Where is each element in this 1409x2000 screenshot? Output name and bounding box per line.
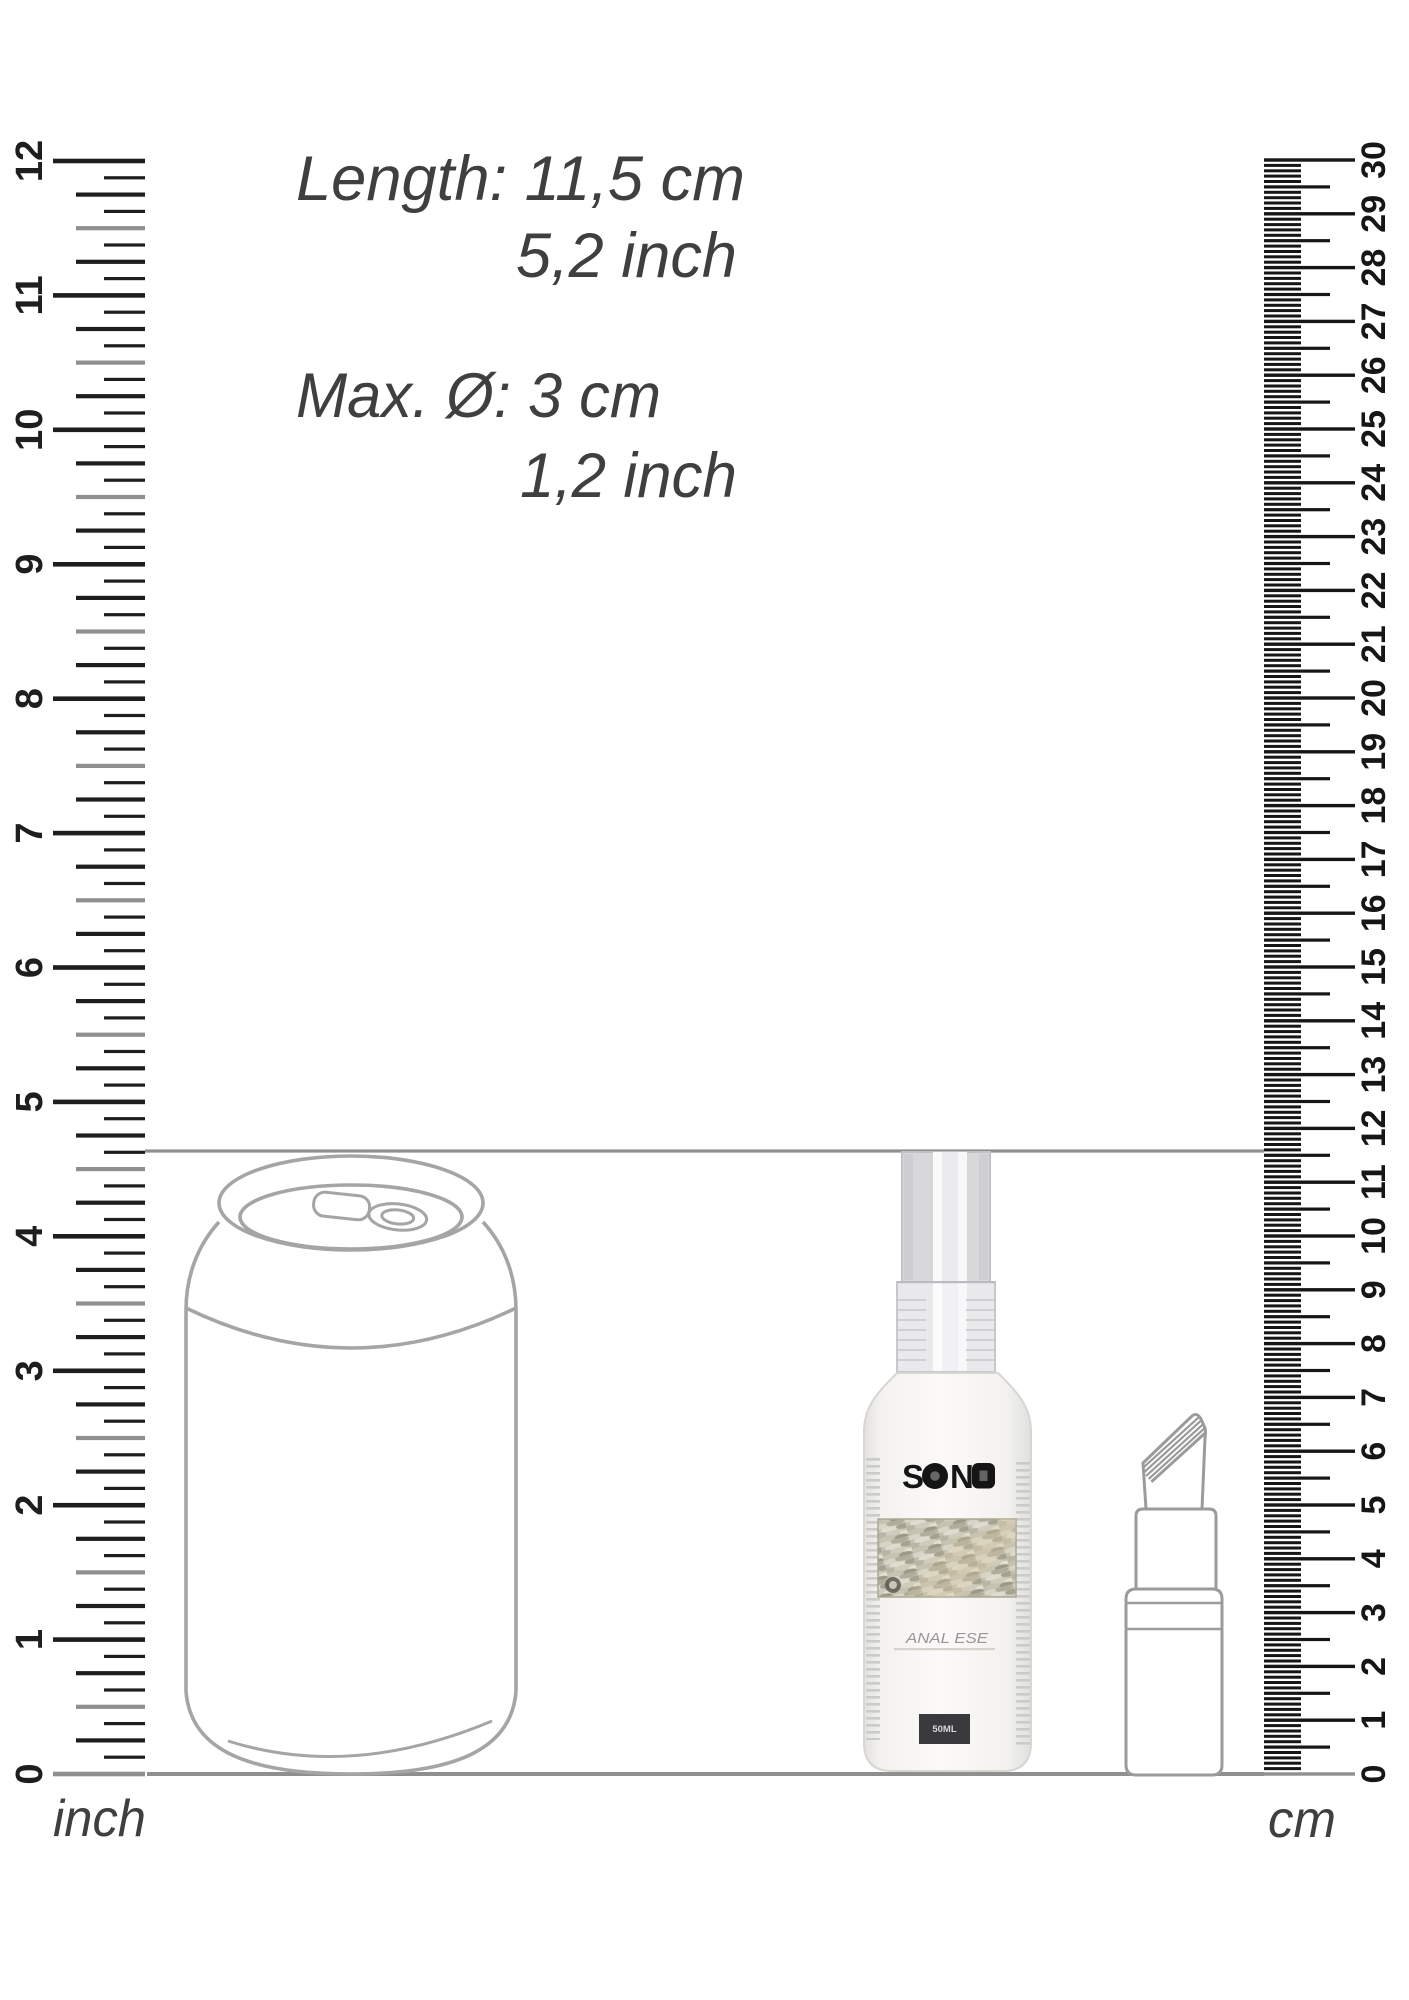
svg-text:26: 26 [1355, 356, 1393, 394]
svg-text:25: 25 [1355, 410, 1393, 448]
svg-text:20: 20 [1355, 679, 1393, 717]
svg-text:2: 2 [1355, 1657, 1393, 1676]
svg-text:8: 8 [9, 688, 51, 709]
svg-text:15: 15 [1355, 948, 1393, 986]
svg-text:5: 5 [9, 1091, 51, 1112]
svg-text:ANAL ESE: ANAL ESE [905, 1630, 989, 1647]
svg-text:cm: cm [1268, 1791, 1336, 1849]
svg-text:12: 12 [9, 140, 51, 182]
svg-text:0: 0 [1355, 1765, 1393, 1784]
svg-text:9: 9 [1355, 1280, 1393, 1299]
svg-text:9: 9 [9, 554, 51, 575]
svg-text:4: 4 [9, 1226, 51, 1247]
svg-text:6: 6 [9, 957, 51, 978]
svg-text:13: 13 [1355, 1056, 1393, 1094]
svg-text:14: 14 [1355, 1002, 1393, 1040]
svg-text:2: 2 [9, 1495, 51, 1516]
svg-text:18: 18 [1355, 787, 1393, 825]
svg-text:3: 3 [1355, 1603, 1393, 1622]
svg-text:12: 12 [1355, 1109, 1393, 1147]
svg-text:S: S [902, 1458, 924, 1495]
svg-text:23: 23 [1355, 518, 1393, 556]
svg-text:1: 1 [9, 1629, 51, 1650]
svg-text:30: 30 [1355, 141, 1393, 179]
svg-text:7: 7 [1355, 1388, 1393, 1407]
svg-text:6: 6 [1355, 1442, 1393, 1461]
svg-text:27: 27 [1355, 302, 1393, 340]
svg-text:3: 3 [9, 1360, 51, 1381]
svg-text:7: 7 [9, 823, 51, 844]
svg-text:5: 5 [1355, 1496, 1393, 1515]
svg-text:1,2 inch: 1,2 inch [520, 441, 737, 511]
svg-text:50ML: 50ML [932, 1724, 956, 1735]
svg-text:28: 28 [1355, 249, 1393, 287]
svg-text:8: 8 [1355, 1334, 1393, 1353]
svg-text:N: N [950, 1458, 974, 1495]
svg-text:5,2 inch: 5,2 inch [516, 221, 737, 291]
svg-text:10: 10 [1355, 1217, 1393, 1255]
svg-text:inch: inch [53, 1790, 146, 1848]
svg-text:11: 11 [1355, 1164, 1393, 1200]
svg-text:4: 4 [1355, 1549, 1393, 1568]
svg-text:16: 16 [1355, 894, 1393, 932]
svg-text:21: 21 [1355, 625, 1393, 663]
svg-text:10: 10 [9, 409, 51, 451]
svg-text:Max. Ø: 3 cm: Max. Ø: 3 cm [296, 361, 661, 431]
svg-text:0: 0 [9, 1763, 51, 1784]
svg-text:22: 22 [1355, 571, 1393, 609]
svg-text:29: 29 [1355, 195, 1393, 233]
svg-text:24: 24 [1355, 464, 1393, 502]
svg-text:17: 17 [1355, 840, 1393, 878]
svg-text:19: 19 [1355, 733, 1393, 771]
svg-text:11: 11 [9, 275, 51, 315]
svg-text:1: 1 [1355, 1711, 1393, 1730]
svg-text:Length: 11,5 cm: Length: 11,5 cm [296, 144, 745, 214]
